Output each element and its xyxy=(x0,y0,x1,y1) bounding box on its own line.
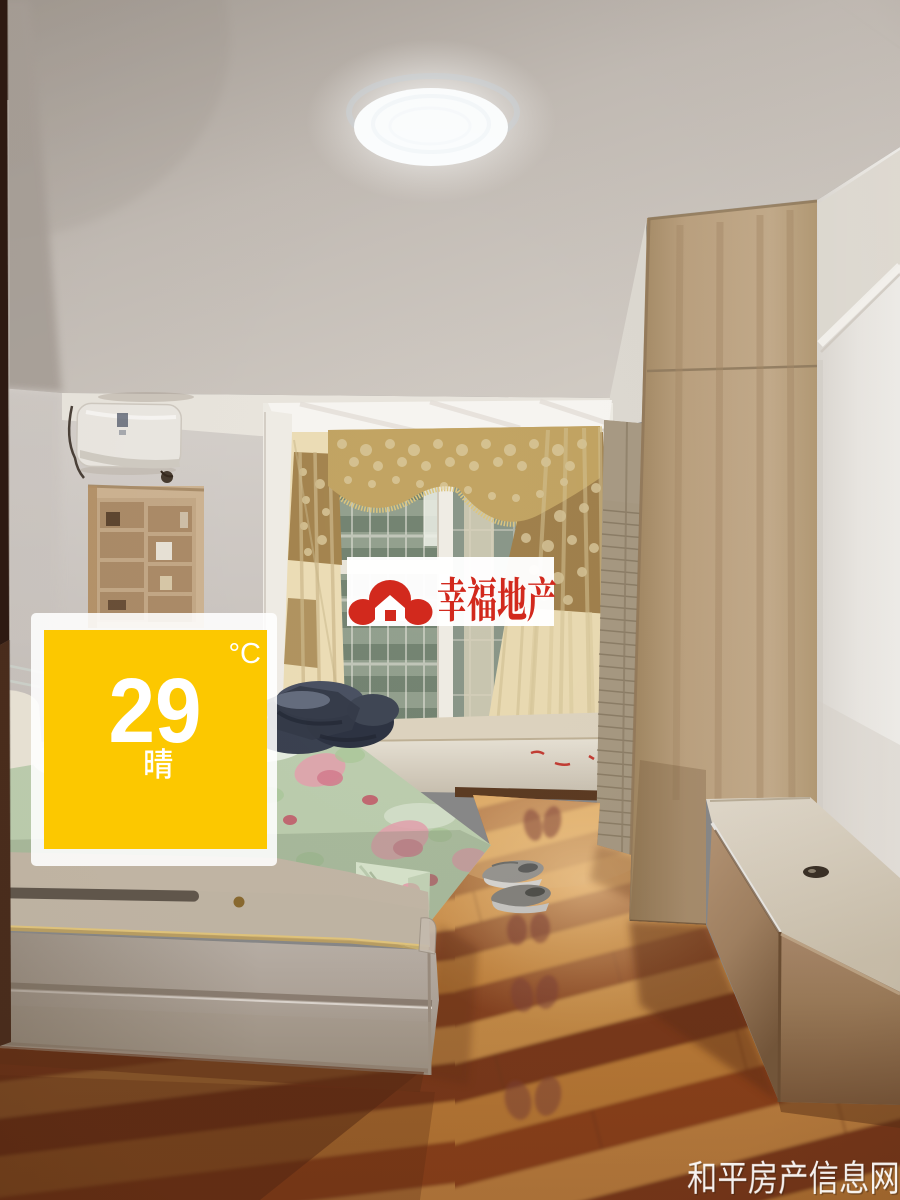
svg-text:°C: °C xyxy=(228,638,261,670)
svg-text:29: 29 xyxy=(109,660,202,762)
